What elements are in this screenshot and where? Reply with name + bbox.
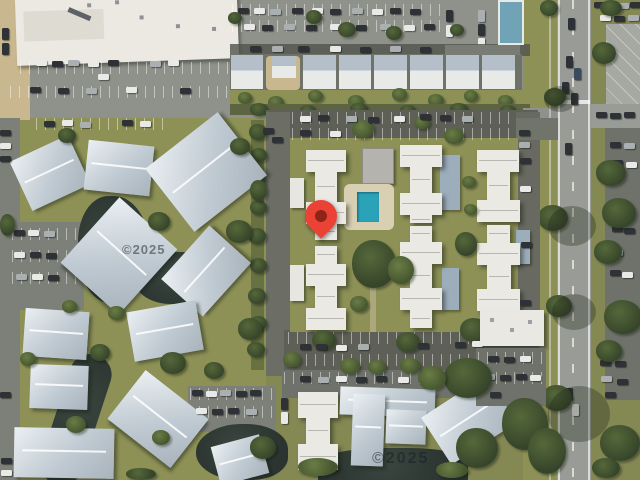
car xyxy=(272,46,283,52)
strip-unit xyxy=(231,55,263,89)
car xyxy=(306,25,317,31)
car xyxy=(624,228,635,234)
car xyxy=(318,377,329,383)
tree xyxy=(400,358,420,373)
car xyxy=(140,121,151,127)
tree xyxy=(250,436,276,459)
tree xyxy=(418,366,446,390)
car xyxy=(98,74,109,80)
car xyxy=(336,376,347,382)
tree xyxy=(388,256,414,284)
tree xyxy=(250,180,267,201)
car xyxy=(88,61,99,67)
satellite-map[interactable]: ©2025 ©2025 xyxy=(0,0,640,480)
car xyxy=(610,142,621,148)
tree xyxy=(540,0,558,16)
car xyxy=(516,374,527,380)
car xyxy=(246,409,257,415)
tree xyxy=(20,352,36,366)
dark-roof-strip xyxy=(445,45,520,55)
car xyxy=(601,376,612,382)
tree xyxy=(90,344,110,361)
car xyxy=(478,10,485,22)
car xyxy=(504,357,515,363)
tree xyxy=(462,176,476,188)
car xyxy=(624,112,635,118)
tree xyxy=(600,425,640,461)
tree xyxy=(126,468,156,480)
tree xyxy=(238,318,262,340)
car xyxy=(86,88,97,94)
car xyxy=(80,122,91,128)
tree xyxy=(596,340,622,362)
car xyxy=(52,61,63,67)
tree xyxy=(455,232,477,256)
roof-section xyxy=(23,9,104,42)
car xyxy=(0,130,11,136)
tree xyxy=(306,10,322,24)
car xyxy=(318,115,329,121)
tree xyxy=(596,160,626,186)
strip-unit xyxy=(482,55,515,89)
car xyxy=(46,253,57,259)
tree xyxy=(594,240,622,264)
tree xyxy=(528,428,566,474)
location-pin-icon[interactable] xyxy=(303,198,339,242)
car xyxy=(410,9,421,15)
car xyxy=(358,344,369,350)
tree xyxy=(283,352,301,367)
condo-building xyxy=(84,140,155,197)
car xyxy=(440,115,451,121)
car xyxy=(168,60,179,66)
car xyxy=(2,43,9,55)
car xyxy=(316,344,327,350)
car xyxy=(346,116,357,122)
car xyxy=(206,391,217,397)
car xyxy=(628,15,639,21)
car xyxy=(626,162,637,168)
blue-roof-section xyxy=(442,268,459,310)
tree xyxy=(604,300,640,334)
strip-unit xyxy=(410,55,443,89)
car xyxy=(614,16,625,22)
blue-roof-section xyxy=(440,155,460,210)
car xyxy=(404,25,415,31)
tree xyxy=(160,352,186,374)
car xyxy=(372,9,383,15)
car xyxy=(196,408,207,414)
hvac-unit xyxy=(140,15,144,19)
tree xyxy=(592,458,620,478)
car xyxy=(254,8,265,14)
car xyxy=(212,409,223,415)
tree xyxy=(62,300,77,313)
car xyxy=(300,130,311,136)
tree xyxy=(450,24,464,36)
tree xyxy=(464,204,477,215)
tree xyxy=(108,306,125,320)
tree xyxy=(58,128,76,143)
car xyxy=(520,186,531,192)
car xyxy=(390,8,401,14)
car xyxy=(420,114,431,120)
car xyxy=(530,375,541,381)
car xyxy=(610,113,621,119)
car xyxy=(500,375,511,381)
car xyxy=(596,112,607,118)
car xyxy=(14,252,25,258)
tree xyxy=(152,430,170,445)
tree xyxy=(396,332,420,352)
tree xyxy=(230,138,250,155)
car xyxy=(1,458,12,464)
car xyxy=(617,379,628,385)
car xyxy=(68,60,79,66)
tree xyxy=(66,416,86,433)
car xyxy=(122,120,133,126)
car xyxy=(566,56,573,68)
car xyxy=(519,130,530,136)
tree xyxy=(250,200,267,215)
car xyxy=(0,143,11,149)
strip-unit xyxy=(303,55,336,89)
tree xyxy=(392,88,407,101)
car xyxy=(455,342,466,348)
car xyxy=(330,131,341,137)
car xyxy=(250,46,261,52)
ne-parking-lot xyxy=(606,24,640,104)
tree-shadow xyxy=(544,86,576,112)
car xyxy=(62,120,73,126)
car xyxy=(236,391,247,397)
tree xyxy=(250,258,267,273)
car xyxy=(398,377,409,383)
tree xyxy=(600,0,622,16)
stall-lines xyxy=(292,128,516,140)
tree xyxy=(444,358,492,398)
car xyxy=(565,143,572,155)
tree xyxy=(340,358,360,374)
office-building xyxy=(480,310,544,346)
car xyxy=(44,121,55,127)
car xyxy=(520,158,531,164)
strip-unit xyxy=(272,56,296,78)
car xyxy=(462,116,473,122)
tree xyxy=(247,342,265,357)
tree xyxy=(204,362,224,379)
tree xyxy=(464,90,478,102)
tree-shadow xyxy=(552,294,596,330)
tree-shadow xyxy=(548,206,596,246)
car xyxy=(30,87,41,93)
car xyxy=(0,156,11,162)
car xyxy=(300,376,311,382)
tree xyxy=(368,360,386,374)
car xyxy=(32,274,43,280)
car xyxy=(521,242,532,248)
car xyxy=(424,24,435,30)
tree xyxy=(456,428,498,468)
teal-roof-building xyxy=(498,0,524,45)
imagery-watermark: ©2025 xyxy=(372,450,429,468)
car xyxy=(292,8,303,14)
car xyxy=(0,392,11,398)
imagery-watermark: ©2025 xyxy=(122,242,166,257)
car xyxy=(390,46,401,52)
pin-inner-dot xyxy=(315,210,327,222)
car xyxy=(330,46,341,52)
south-condo-building xyxy=(385,409,426,444)
tree xyxy=(238,92,252,104)
condo-building xyxy=(14,427,115,479)
car xyxy=(568,18,575,30)
car xyxy=(28,230,39,236)
car xyxy=(615,361,626,367)
tree xyxy=(592,42,616,64)
swimming-pool xyxy=(357,192,379,222)
car xyxy=(360,47,371,53)
car xyxy=(244,24,255,30)
tree xyxy=(386,26,402,40)
car xyxy=(490,392,501,398)
car xyxy=(488,356,499,362)
car xyxy=(150,61,161,67)
car xyxy=(44,231,55,237)
car xyxy=(220,390,231,396)
car xyxy=(48,275,59,281)
car xyxy=(622,272,633,278)
tree xyxy=(248,288,266,304)
clubhouse-roof xyxy=(362,148,394,184)
car xyxy=(180,88,191,94)
car xyxy=(478,24,485,36)
tree xyxy=(602,198,636,228)
car xyxy=(126,87,137,93)
car xyxy=(520,300,531,306)
car xyxy=(16,274,27,280)
car xyxy=(356,377,367,383)
outbuilding xyxy=(290,178,304,208)
car xyxy=(270,9,281,15)
car xyxy=(30,252,41,258)
car xyxy=(520,356,531,362)
hvac-unit xyxy=(87,3,91,7)
car xyxy=(108,60,119,66)
car xyxy=(1,470,12,476)
car xyxy=(630,2,640,8)
complex-entrance xyxy=(516,118,558,140)
car xyxy=(228,408,239,414)
car xyxy=(192,390,203,396)
car xyxy=(418,343,429,349)
car xyxy=(36,60,47,66)
tree xyxy=(148,212,170,231)
car xyxy=(352,8,363,14)
strip-unit xyxy=(374,55,407,89)
hvac-unit xyxy=(115,0,119,4)
tree xyxy=(350,296,368,312)
tree xyxy=(436,462,468,478)
car xyxy=(263,128,274,134)
tree xyxy=(0,214,15,236)
tree xyxy=(298,458,338,476)
car xyxy=(298,46,309,52)
tree xyxy=(226,220,252,243)
car xyxy=(330,9,341,15)
car xyxy=(394,116,405,122)
car xyxy=(281,412,288,424)
big-box-store-roof xyxy=(15,0,239,66)
condo-building xyxy=(29,364,89,410)
car xyxy=(446,10,453,22)
car xyxy=(624,143,635,149)
car xyxy=(250,390,261,396)
outbuilding xyxy=(290,265,304,301)
tree xyxy=(444,128,464,144)
strip-unit xyxy=(339,55,371,89)
car xyxy=(574,68,581,80)
hvac-unit xyxy=(212,27,216,31)
car xyxy=(300,116,311,122)
car xyxy=(284,24,295,30)
car xyxy=(14,230,25,236)
car xyxy=(300,344,311,350)
car xyxy=(519,142,530,148)
tree xyxy=(228,12,242,24)
car xyxy=(420,47,431,53)
car xyxy=(356,25,367,31)
car xyxy=(272,137,283,143)
car xyxy=(281,398,288,410)
strip-unit xyxy=(446,55,479,89)
car xyxy=(262,25,273,31)
car xyxy=(336,345,347,351)
tree xyxy=(338,22,356,37)
car xyxy=(58,88,69,94)
hvac-unit xyxy=(176,24,180,28)
car xyxy=(605,392,616,398)
car xyxy=(376,376,387,382)
tree xyxy=(308,90,323,102)
car xyxy=(610,270,621,276)
car xyxy=(368,117,379,123)
car xyxy=(2,28,9,40)
